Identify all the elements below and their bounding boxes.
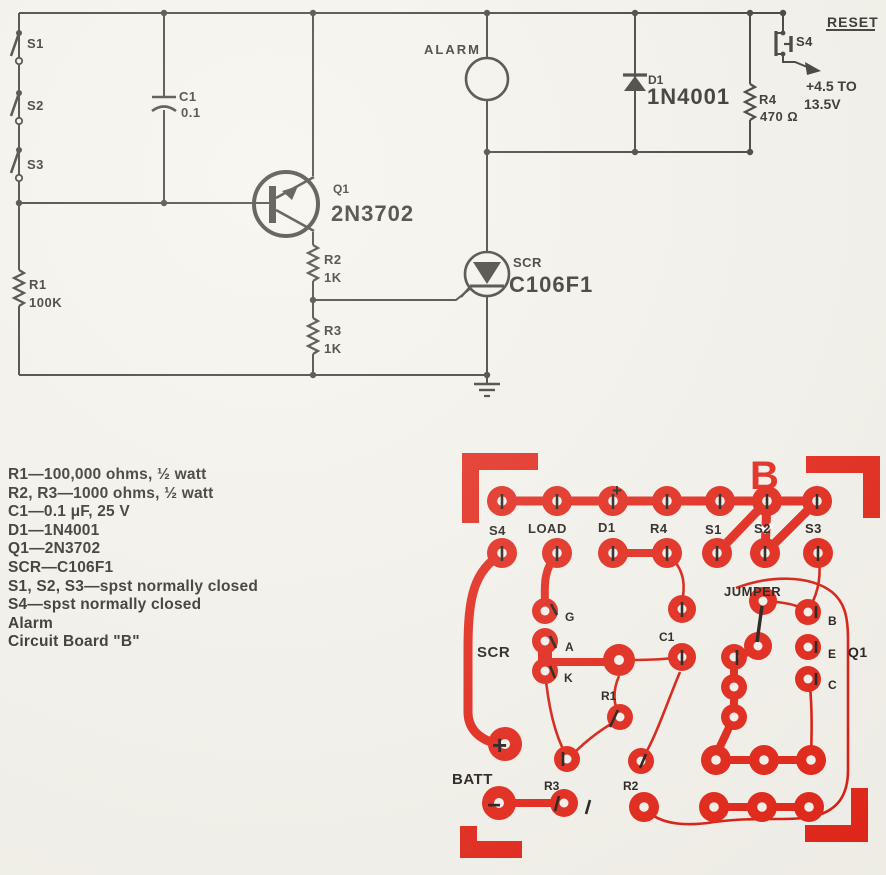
d1-value-label: 1N4001: [647, 84, 730, 109]
parts-list-line: Alarm: [8, 615, 438, 634]
s3-label: S3: [27, 157, 44, 172]
switch-s2-symbol: [11, 90, 22, 124]
switch-s1-symbol: [11, 30, 22, 64]
schematic-diagram: [11, 10, 875, 396]
resistor-r1-symbol: [14, 270, 24, 306]
q1-value-label: 2N3702: [331, 201, 414, 226]
pcb-r3-label: R3: [544, 779, 560, 793]
pcb-q1-label: Q1: [848, 644, 868, 660]
pcb-scr-k-label: K: [564, 671, 573, 685]
pcb-scr-g-label: G: [565, 610, 574, 624]
junction-dots: [16, 10, 786, 378]
s1-label: S1: [27, 36, 44, 51]
parts-list: R1—100,000 ohms, ½ watt R2, R3—1000 ohms…: [8, 466, 438, 652]
parts-list-line: C1—0.1 μF, 25 V: [8, 503, 438, 522]
parts-list-line: SCR—C106F1: [8, 559, 438, 578]
c1-ref-label: C1: [179, 89, 197, 104]
pcb-layout: [460, 453, 880, 858]
parts-list-line: Circuit Board "B": [8, 633, 438, 652]
switch-s4-symbol: [776, 31, 791, 57]
r1-value-label: 100K: [29, 295, 62, 310]
pcb-scr-a-label: A: [565, 640, 574, 654]
pcb-title: B: [750, 454, 780, 498]
r2-value-label: 1K: [324, 270, 342, 285]
switch-s3-symbol: [11, 147, 22, 181]
pcb-q1-c-label: C: [828, 678, 837, 692]
s2-label: S2: [27, 98, 44, 113]
parts-list-line: R1—100,000 ohms, ½ watt: [8, 466, 438, 485]
reset-label: RESET: [827, 14, 879, 30]
pcb-s1-label: S1: [705, 522, 722, 537]
pcb-s3-label: S3: [805, 521, 822, 536]
c1-value-label: 0.1: [181, 105, 201, 120]
wire-gate: [313, 288, 471, 300]
pcb-d1-plus-mark: +: [612, 481, 622, 500]
s4-label: S4: [796, 34, 813, 49]
pcb-batt-label: BATT: [452, 771, 493, 788]
scr-value-label: C106F1: [509, 272, 593, 297]
r4-value-label: 470 Ω: [760, 109, 798, 124]
supply-arrow: [805, 62, 821, 75]
pcb-scr-label: SCR: [477, 644, 510, 661]
pcb-d1-label: D1: [598, 520, 616, 535]
pcb-jumper-label: JUMPER: [724, 584, 781, 599]
supply-label-line2: 13.5V: [804, 96, 841, 112]
pcb-r1-label: R1: [601, 689, 617, 703]
alarm-symbol: [466, 58, 508, 100]
capacitor-c1-symbol: [152, 97, 176, 111]
r2-ref-label: R2: [324, 252, 342, 267]
resistor-r3-symbol: [308, 318, 318, 354]
alarm-label: ALARM: [424, 42, 481, 57]
parts-list-line: S1, S2, S3—spst normally closed: [8, 578, 438, 597]
r3-value-label: 1K: [324, 341, 342, 356]
scr-symbol: [461, 252, 509, 297]
parts-list-line: D1—1N4001: [8, 522, 438, 541]
q1-ref-label: Q1: [333, 182, 349, 196]
diode-d1-symbol: [623, 75, 647, 91]
r4-ref-label: R4: [759, 92, 777, 107]
resistor-r2-symbol: [308, 245, 318, 281]
scanned-figure: S1 S2 S3 C1 0.1 Q1 2N3702 ALARM R1 100K …: [0, 0, 886, 875]
ground-symbol: [474, 384, 500, 396]
pcb-s2-label: S2: [754, 521, 771, 536]
pcb-batt-minus-mark: −: [487, 792, 501, 819]
figure-canvas: S1 S2 S3 C1 0.1 Q1 2N3702 ALARM R1 100K …: [0, 0, 886, 875]
pcb-batt-plus-mark: +: [492, 730, 507, 760]
r3-ref-label: R3: [324, 323, 342, 338]
parts-list-line: Q1—2N3702: [8, 540, 438, 559]
r1-ref-label: R1: [29, 277, 47, 292]
parts-list-line: S4—spst normally closed: [8, 596, 438, 615]
pcb-r4-label: R4: [650, 521, 668, 536]
pcb-load-label: LOAD: [528, 521, 567, 536]
supply-label-line1: +4.5 TO: [806, 78, 857, 94]
pcb-q1-b-label: B: [828, 614, 837, 628]
pcb-r2-label: R2: [623, 779, 639, 793]
resistor-r4-symbol: [745, 84, 755, 120]
scr-ref-label: SCR: [513, 255, 542, 270]
pcb-s4-label: S4: [489, 523, 506, 538]
pcb-c1-label: C1: [659, 630, 675, 644]
parts-list-line: R2, R3—1000 ohms, ½ watt: [8, 485, 438, 504]
pcb-q1-e-label: E: [828, 647, 836, 661]
